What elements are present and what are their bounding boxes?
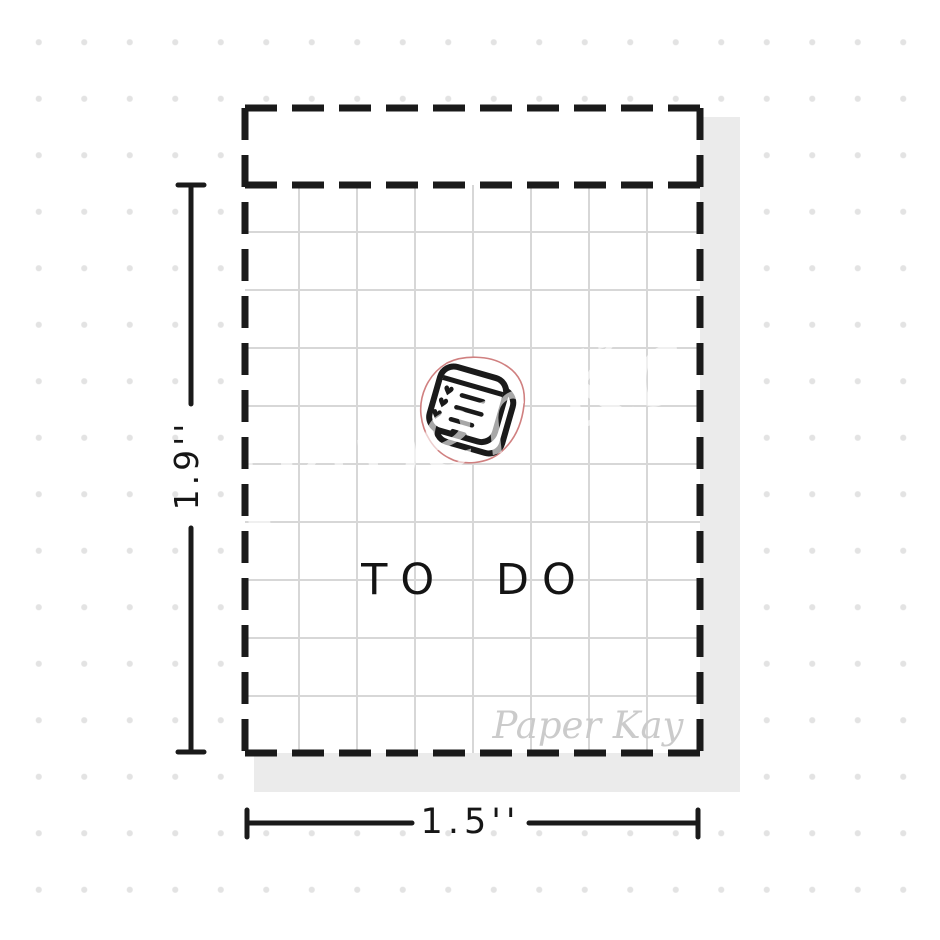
sticker-label: TO DO [335,555,615,605]
height-dimension-label: 1.9'' [158,410,214,520]
width-dimension-label: 1.5'' [408,798,533,846]
product-mockup-canvas: ♥ ♥ ♥ Paper Kay TO DO Paper Kay [0,0,940,940]
brand-signature-watermark: Paper Kay [478,704,698,747]
sticker-sheet: ♥ ♥ ♥ Paper Kay TO DO Paper Kay [245,108,700,753]
